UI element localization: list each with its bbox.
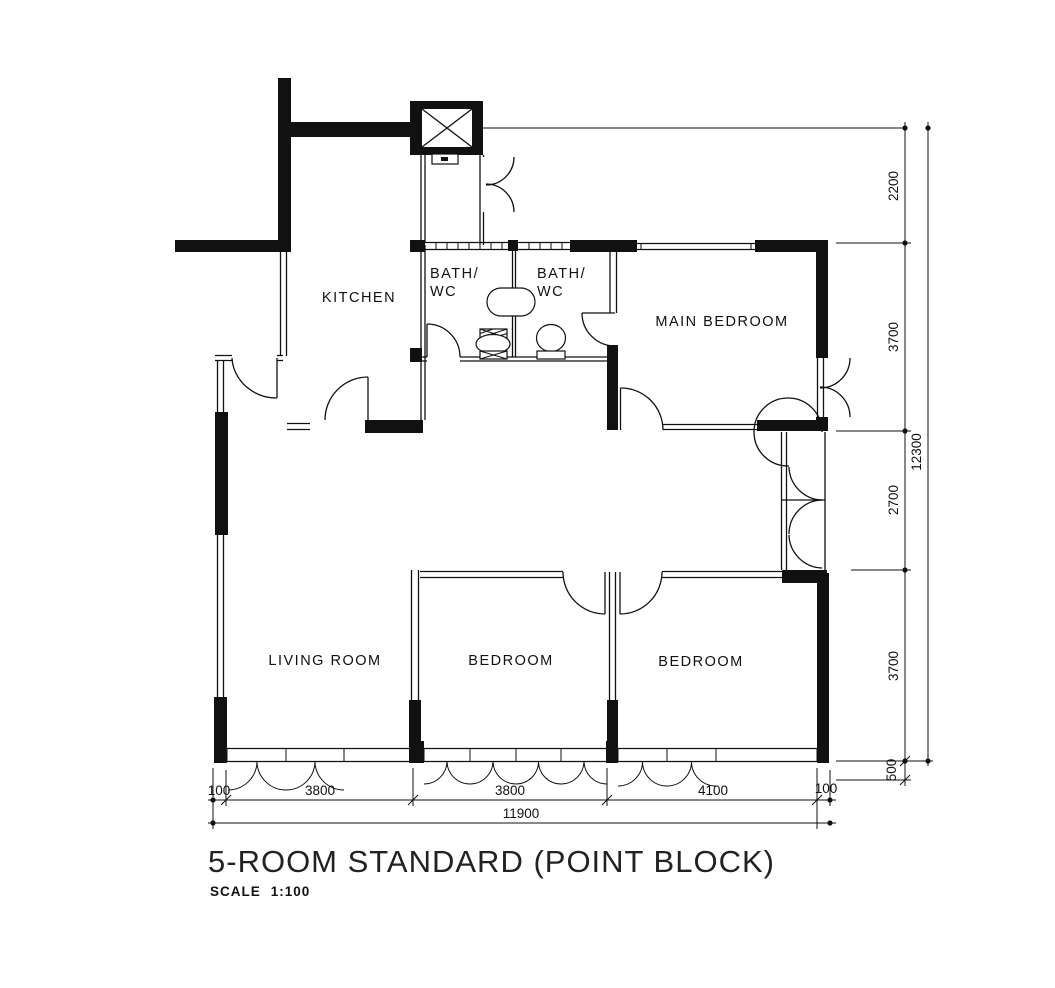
label-living-room: LIVING ROOM xyxy=(268,653,381,669)
doors xyxy=(232,313,663,614)
main-bedroom-door-swing xyxy=(621,388,664,430)
dimension-right: 2200 3700 2700 3700 500 12300 xyxy=(836,122,933,786)
dim-4100: 4100 xyxy=(698,783,728,798)
dimension-bottom: 100 3800 3800 4100 100 11900 xyxy=(208,768,838,829)
lobby-double-door xyxy=(483,128,905,212)
kitchen-door-swing xyxy=(325,377,368,420)
service-duct xyxy=(421,154,484,245)
vanity-fixture xyxy=(487,288,535,316)
basin xyxy=(476,329,510,359)
room-labels: KITCHEN BATH/ WC BATH/ WC MAIN BEDROOM L… xyxy=(268,266,788,670)
dim-3800-mid: 3800 xyxy=(495,783,525,798)
label-bath1-line2: WC xyxy=(430,284,457,300)
dim-2200: 2200 xyxy=(886,171,901,201)
label-main-bedroom: MAIN BEDROOM xyxy=(655,314,788,330)
label-bath2-line2: WC xyxy=(537,284,564,300)
dim-total-height: 12300 xyxy=(909,433,924,471)
floor-plan-canvas: 100 3800 3800 4100 100 11900 2200 3700 2… xyxy=(0,0,1055,988)
floor-plan-drawing: 100 3800 3800 4100 100 11900 2200 3700 2… xyxy=(0,0,1055,988)
dim-3800-left: 3800 xyxy=(305,783,335,798)
label-bath1-line1: BATH/ xyxy=(430,266,479,282)
title-block: 5-ROOM STANDARD (POINT BLOCK) SCALE1:100 xyxy=(208,844,775,899)
scale-value: 1:100 xyxy=(271,884,311,899)
label-bath2-line1: BATH/ xyxy=(537,266,586,282)
dim-3700-bottom: 3700 xyxy=(886,651,901,681)
bath1-door-swing xyxy=(427,324,460,357)
dim-500: 500 xyxy=(884,759,899,782)
bath2-door-swing xyxy=(582,313,615,346)
label-kitchen: KITCHEN xyxy=(322,290,396,306)
dim-total-width: 11900 xyxy=(503,806,540,821)
lift-shaft xyxy=(410,101,483,155)
scale-word: SCALE xyxy=(210,884,261,899)
dim-3700-top: 3700 xyxy=(886,322,901,352)
dim-2700: 2700 xyxy=(886,485,901,515)
dim-100-left: 100 xyxy=(208,783,231,798)
label-bedroom1: BEDROOM xyxy=(468,653,553,669)
entrance-door-swing xyxy=(232,358,277,398)
dim-100-right: 100 xyxy=(815,781,838,796)
label-bedroom2: BEDROOM xyxy=(658,654,743,670)
plan-title: 5-ROOM STANDARD (POINT BLOCK) xyxy=(208,844,775,879)
bedroom2-door-swing xyxy=(620,572,662,614)
bedroom1-door-swing xyxy=(563,572,605,614)
toilet xyxy=(537,325,566,360)
scale-label: SCALE1:100 xyxy=(210,884,310,899)
